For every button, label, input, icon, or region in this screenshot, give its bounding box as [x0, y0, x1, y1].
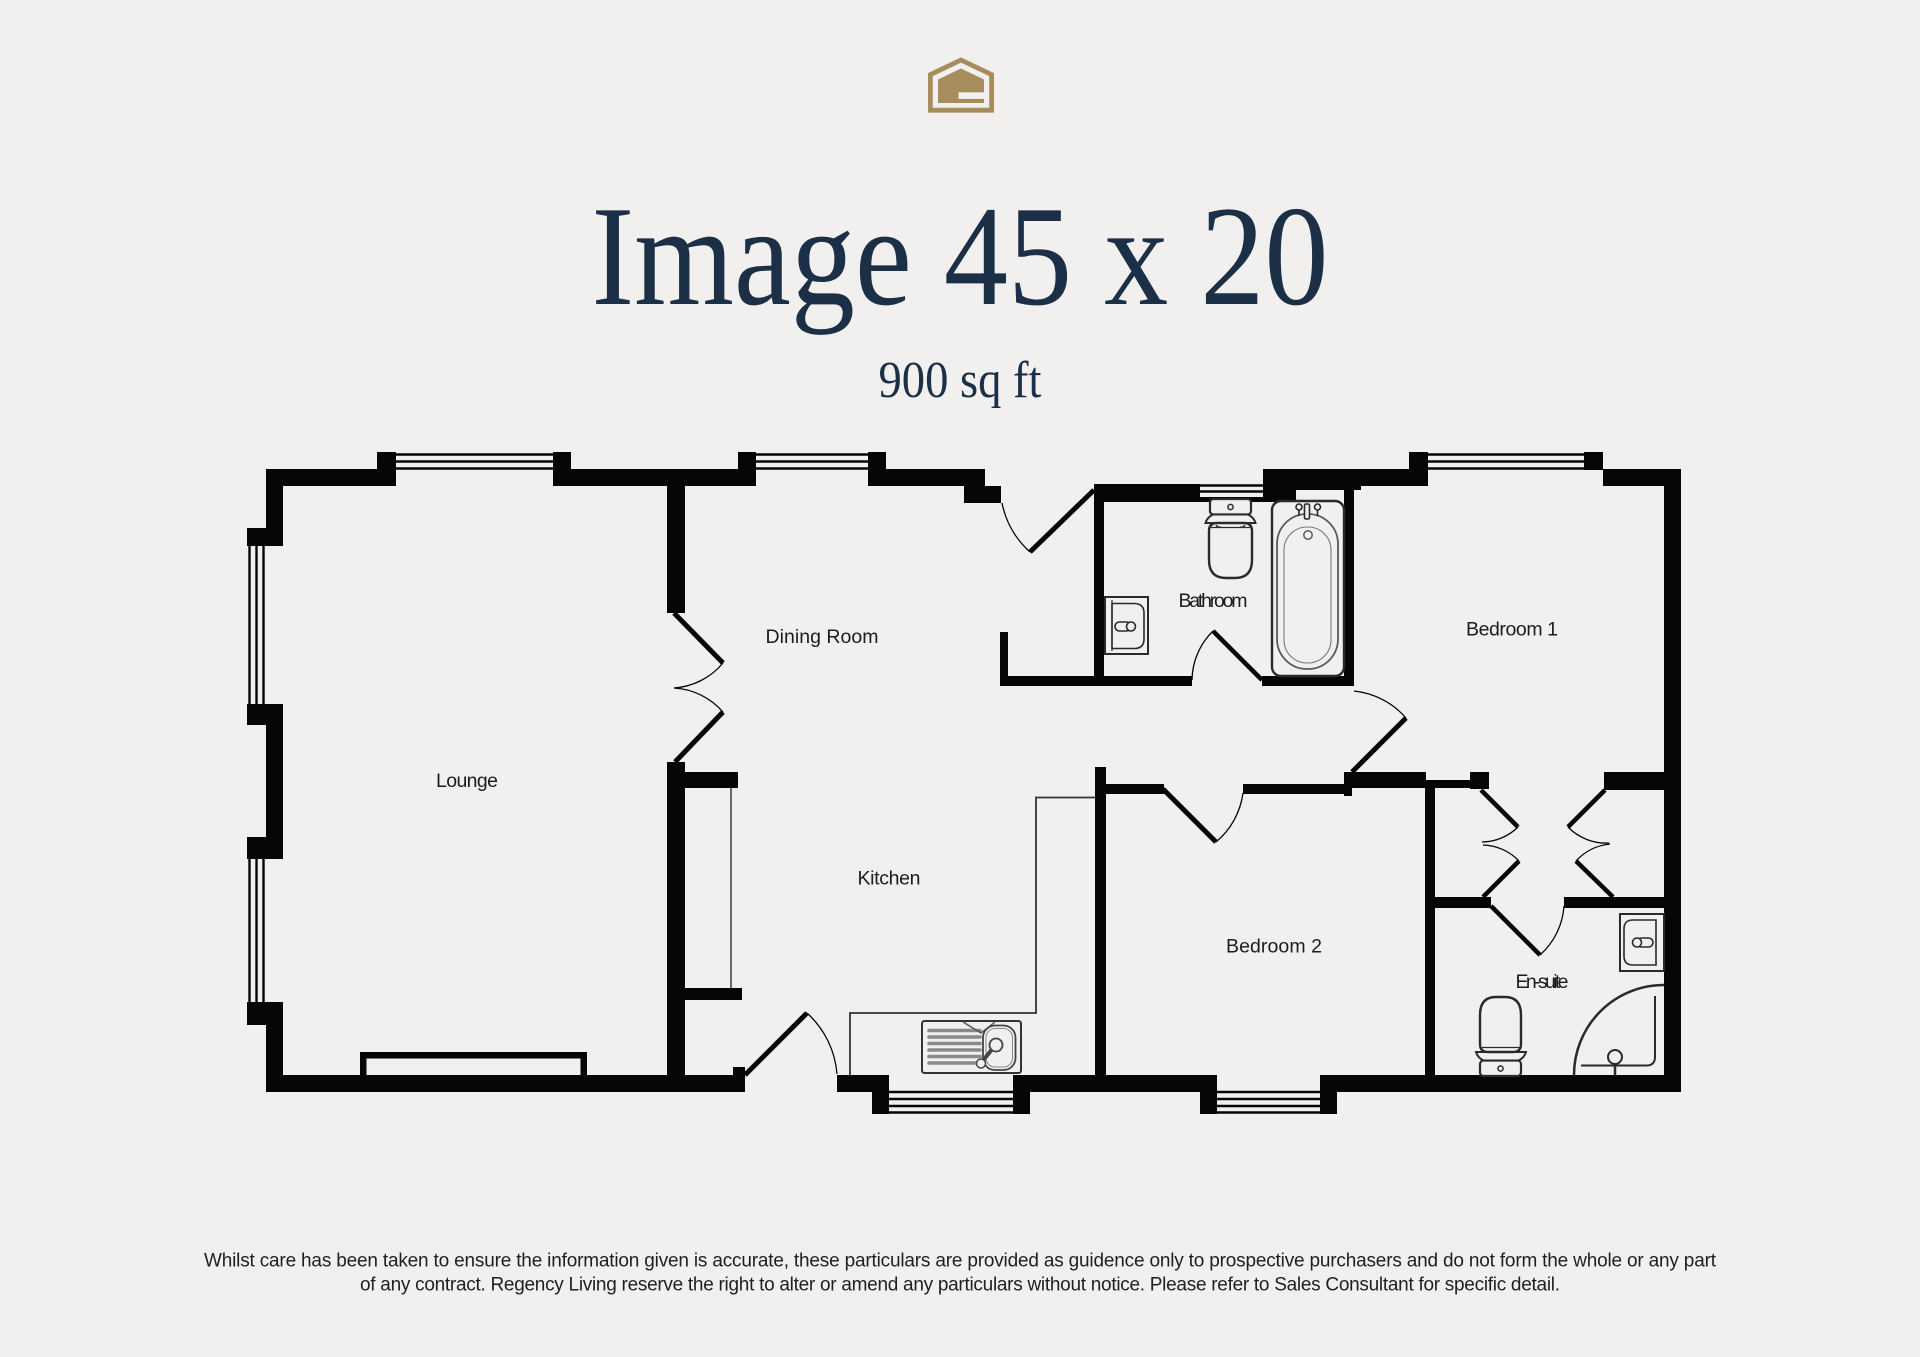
svg-text:Lounge: Lounge — [436, 770, 498, 792]
svg-text:En-suite: En-suite — [1516, 971, 1569, 993]
svg-text:of any contract. Regency Livin: of any contract. Regency Living reserve … — [360, 1275, 1560, 1296]
svg-text:Bathroom: Bathroom — [1179, 590, 1248, 612]
svg-text:Whilst care has been taken to: Whilst care has been taken to ensure the… — [204, 1251, 1717, 1272]
svg-text:900 sq ft: 900 sq ft — [879, 352, 1042, 409]
svg-text:Bedroom 1: Bedroom 1 — [1466, 619, 1558, 641]
svg-text:Image 45 x 20: Image 45 x 20 — [592, 177, 1329, 335]
svg-text:Bedroom 2: Bedroom 2 — [1226, 936, 1322, 958]
svg-text:Kitchen: Kitchen — [858, 868, 921, 890]
svg-text:Dining Room: Dining Room — [766, 626, 879, 648]
